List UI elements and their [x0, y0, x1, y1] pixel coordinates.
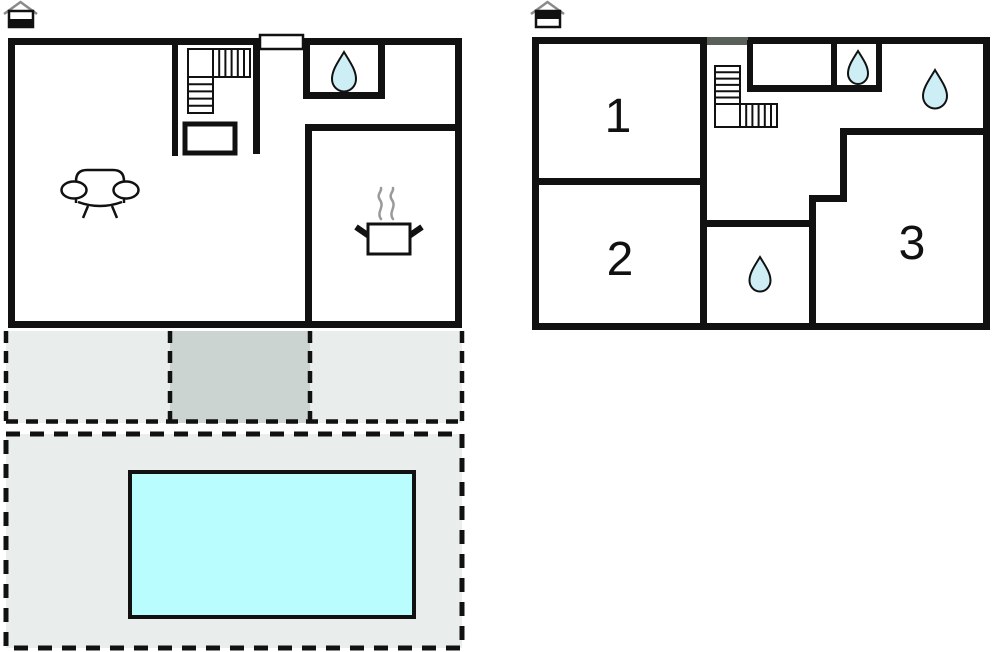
bathroom-bottom-wall-upper — [840, 128, 988, 135]
pool-area — [6, 434, 462, 648]
house-ground-level-fill — [9, 19, 33, 27]
swimming-pool — [130, 472, 414, 617]
stair-closet — [185, 124, 235, 153]
top-middle-room-bottom-wall — [747, 85, 882, 92]
room-2-label: 2 — [607, 233, 634, 286]
stair-landing — [188, 49, 213, 77]
floor-plan-canvas: 1 2 3 — [0, 0, 995, 652]
house-upper-floor-icon — [531, 2, 564, 27]
patio-area — [6, 331, 462, 423]
wc-left-wall — [831, 40, 837, 91]
kitchen-top-wall — [305, 124, 459, 131]
house-upper-level-fill — [536, 11, 560, 19]
sofa-armrest-right — [114, 182, 139, 199]
room3-step-vertical-wall — [840, 128, 847, 202]
room-1-label: 1 — [605, 90, 632, 143]
bathroom-right-wall — [378, 41, 385, 99]
pot-body — [368, 224, 410, 254]
bathroom-left-wall-upper — [876, 40, 882, 92]
stairwell-wall-opening — [707, 37, 748, 45]
ground-floor-plan — [4, 2, 462, 648]
top-middle-room-left-wall — [747, 40, 753, 91]
stair-landing — [715, 104, 740, 127]
room-3-label: 3 — [899, 217, 926, 270]
bathroom-bottom-wall — [303, 92, 385, 99]
entrance-door — [260, 35, 303, 49]
room3-left-wall — [809, 195, 816, 330]
stair-hall-right-wall — [253, 41, 260, 154]
room1-room2-divider-wall — [536, 178, 707, 185]
sofa-armrest-left — [62, 182, 87, 199]
upper-floor-plan: 1 2 3 — [531, 2, 988, 330]
stair-hall-left-wall — [172, 41, 178, 156]
shower-room-top-wall — [707, 220, 809, 227]
stair-lower-run — [188, 77, 213, 113]
house-ground-floor-icon — [4, 2, 37, 27]
kitchen-left-wall — [305, 124, 312, 325]
floor-plan-drawing: 1 2 3 — [0, 0, 995, 652]
covered-terrace-fill — [170, 331, 310, 423]
